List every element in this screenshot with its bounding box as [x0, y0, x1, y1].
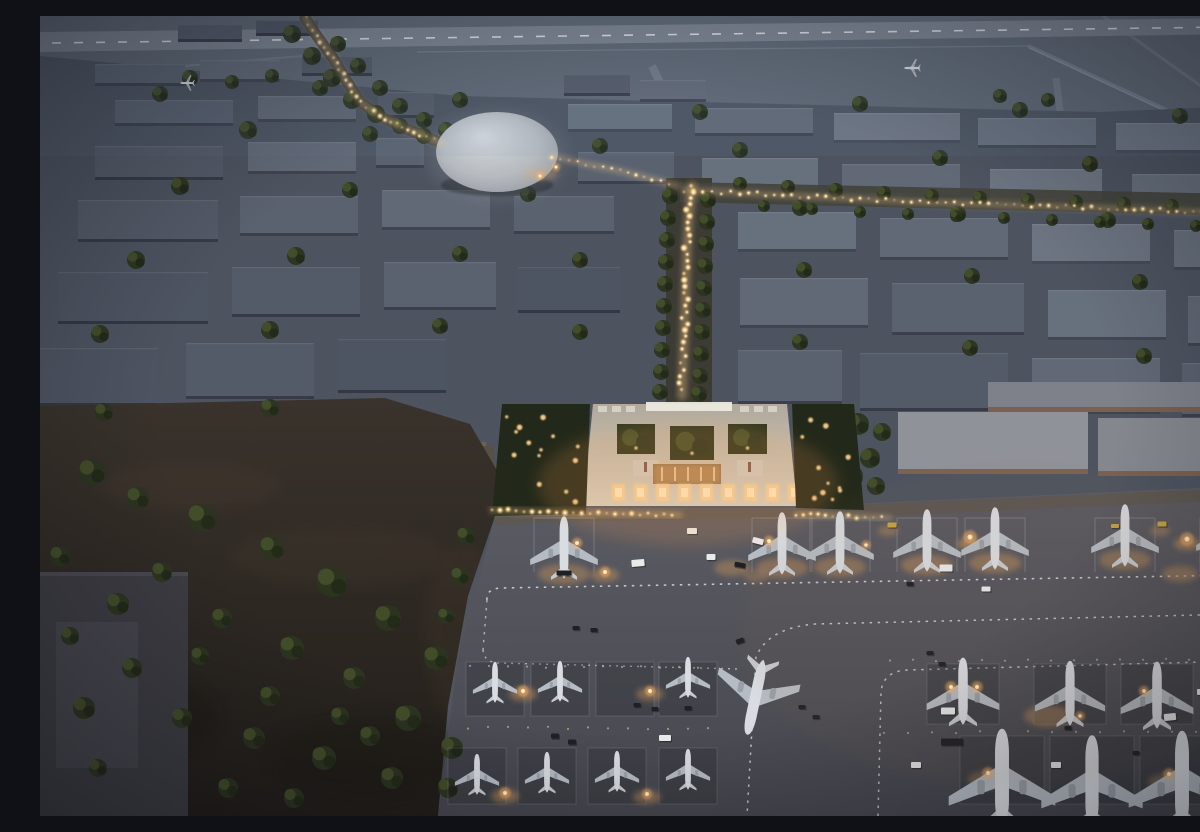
atmosphere-overlay	[40, 16, 1200, 816]
scene-svg	[40, 16, 1200, 816]
aerial-render	[40, 16, 1200, 816]
vignette-overlay	[40, 16, 1200, 816]
